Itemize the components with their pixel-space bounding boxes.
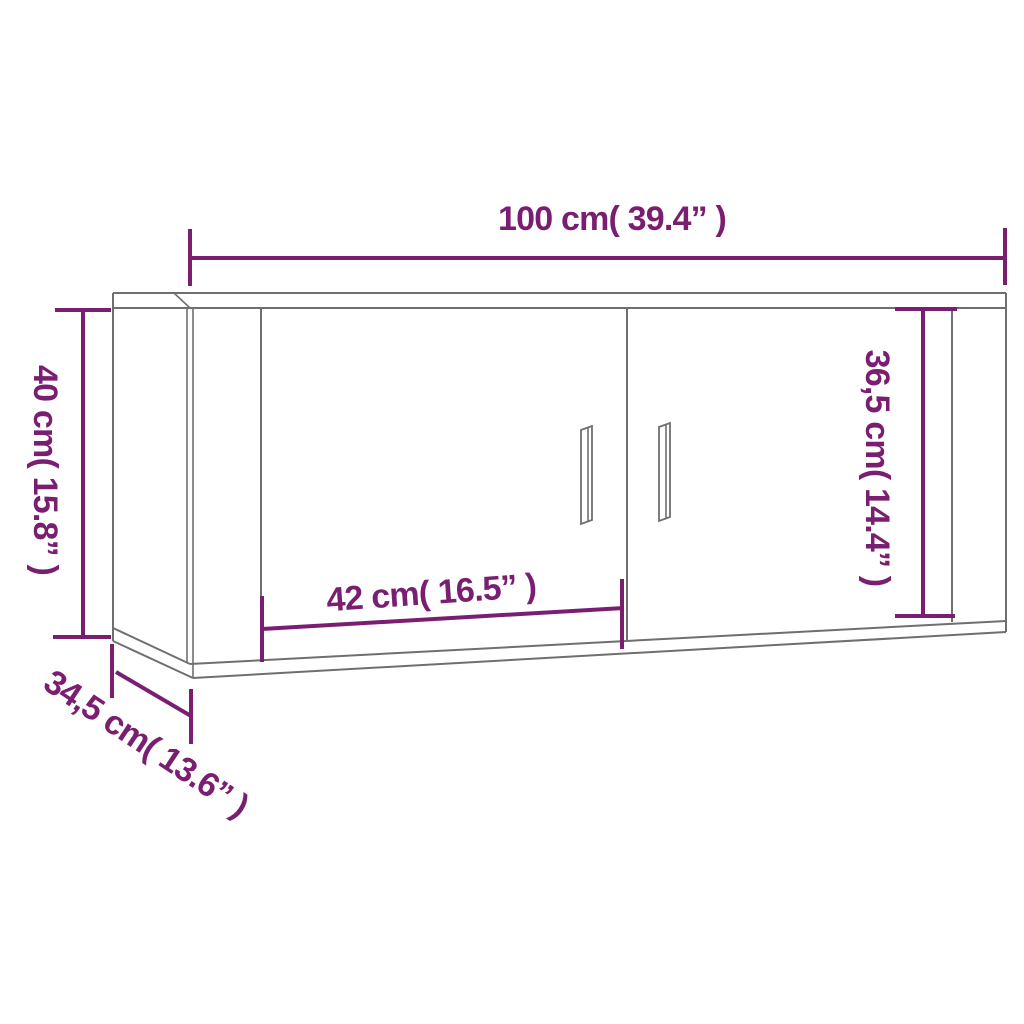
left-door-handle [581,426,592,524]
right-door-handle-body [659,423,670,521]
door-width-dimension: 42 cm( 16.5” ) [262,567,624,662]
door-height-dimension-label: 36,5 cm( 14.4” ) [858,350,896,587]
left-door-handle-body [581,426,592,524]
height-dimension: 40 cm( 15.8” ) [26,310,111,637]
width-dimension-label: 100 cm( 39.4” ) [498,200,726,238]
door-height-dimension: 36,5 cm( 14.4” ) [858,309,957,616]
dimension-diagram: 100 cm( 39.4” ) 40 cm( 15.8” ) 34,5 cm( … [0,0,1024,1024]
depth-dimension-label: 34,5 cm( 13.6” ) [37,663,255,825]
cabinet-bottom-lower-edge [193,632,1006,678]
height-dimension-label: 40 cm( 15.8” ) [26,365,64,575]
depth-dimension: 34,5 cm( 13.6” ) [37,644,255,825]
product-dimension-image: 100 cm( 39.4” ) 40 cm( 15.8” ) 34,5 cm( … [0,0,1024,1024]
width-dimension: 100 cm( 39.4” ) [190,200,1005,286]
cabinet-top-left-corner-edge [174,293,190,308]
door-width-dimension-label: 42 cm( 16.5” ) [325,567,537,620]
right-door-handle [659,423,670,521]
